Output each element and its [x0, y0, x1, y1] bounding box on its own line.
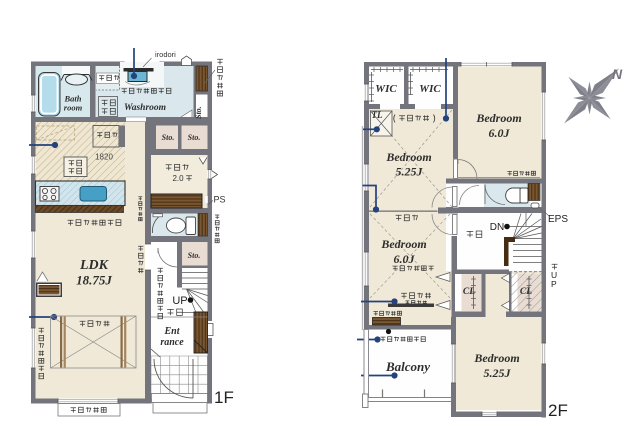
svg-text:irodori: irodori [155, 50, 176, 59]
svg-text:Ent: Ent [163, 326, 180, 337]
svg-text:DN: DN [490, 222, 504, 233]
svg-text:2.0: 2.0 [172, 174, 184, 183]
svg-text:Bedroom: Bedroom [475, 111, 521, 125]
svg-text:N: N [612, 66, 623, 82]
svg-text:Sto.: Sto. [194, 106, 203, 119]
svg-text:PS: PS [214, 195, 226, 205]
svg-text:EPS: EPS [548, 214, 568, 225]
svg-text:P: P [551, 279, 557, 289]
svg-text:5.25J: 5.25J [484, 366, 512, 380]
svg-text:room: room [64, 103, 83, 113]
svg-text:LDK: LDK [79, 258, 110, 273]
svg-text:6.0J: 6.0J [394, 252, 416, 266]
svg-text:Bedroom: Bedroom [385, 150, 431, 164]
svg-text:1F: 1F [214, 388, 234, 407]
svg-text:6.0J: 6.0J [489, 126, 511, 140]
svg-text:Sto.: Sto. [162, 133, 175, 142]
svg-text:5.25J: 5.25J [396, 165, 424, 179]
svg-text:WIC: WIC [375, 83, 397, 95]
svg-text:2F: 2F [548, 401, 568, 420]
svg-text:CL: CL [520, 287, 532, 297]
svg-text:UP: UP [172, 295, 187, 307]
svg-text:TL: TL [372, 110, 383, 120]
svg-text:Bedroom: Bedroom [380, 237, 426, 251]
svg-text:CL: CL [463, 287, 475, 297]
svg-text:rance: rance [160, 337, 184, 348]
svg-text:WIC: WIC [419, 83, 441, 95]
svg-text:Sto.: Sto. [188, 133, 201, 142]
svg-text:18.75J: 18.75J [76, 273, 112, 288]
svg-text:Washroom: Washroom [124, 103, 166, 113]
svg-text:1820: 1820 [95, 153, 113, 162]
svg-text:Balcony: Balcony [385, 359, 430, 374]
svg-text:Sto.: Sto. [188, 251, 201, 260]
svg-text:Bedroom: Bedroom [473, 351, 519, 365]
